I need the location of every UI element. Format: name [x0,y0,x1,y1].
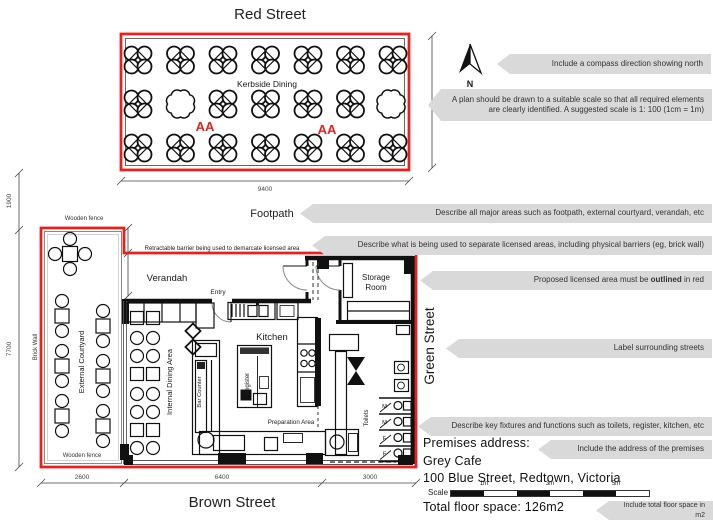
dimension-bottom: 2600 6400 3000 [37,474,420,487]
toilet-stall-label: F [383,436,387,442]
stove-unit [298,318,318,407]
toilet-stalls: M M F F [379,398,411,462]
dimension-1900: 1900 [6,169,23,234]
internal-dining-area: Internal Dining Area [131,312,175,455]
footpath-label: Footpath [240,208,304,220]
callout-compass: Include a compass direction showing nort… [497,54,711,74]
callout-fixtures: Describe key fixtures and functions such… [418,417,712,436]
wooden-fence-bottom-label: Wooden fence [63,453,102,459]
callout-floorspace-note: Include total floor space in m2 [596,501,713,520]
svg-text:1900: 1900 [6,193,13,208]
svg-text:3000: 3000 [363,474,378,481]
callout-separation: Describe what is being used to separate … [312,236,712,255]
scale-tick-3m: 3m [546,481,554,487]
callout-label-streets: Label surrounding streets [446,339,712,358]
scale-tick-5m: 5m [612,481,620,487]
scale-tick-1m: 1m [480,481,488,487]
total-floor-space: Total floor space: 126m2 [423,500,564,514]
callout-address-note: Include the address of the premises [538,440,712,459]
toilet-stall-label: M [382,404,387,410]
dimension-7700: 7700 [6,230,23,471]
preparation-area: Preparation Area [200,419,359,456]
register-label: Register [245,373,251,395]
external-courtyard-label: External Courtyard [77,331,86,394]
scale-bar-strip [450,490,650,497]
kitchen-label: Kitchen [256,332,288,343]
callout-major-areas: Describe all major areas such as footpat… [300,204,712,223]
tree-icon [377,90,405,118]
callout-outlined-red: Proposed licensed area must be outlined … [420,271,712,290]
dimension-9400: 9400 [117,177,413,193]
toilets-label: Toilets [364,409,370,426]
premises-name: Grey Cafe [423,454,482,468]
licensed-area-marker-aa2: AA [318,122,337,137]
scale-label: Scale [428,488,448,497]
tree-icon [167,90,195,118]
callout-outlined-bold: outlined [651,275,682,285]
callout-outlined-prefix: Proposed licensed area must be [534,275,651,285]
retractable-barrier-label: Retractable barrier being used to demarc… [145,246,300,252]
entry-label: Entry [210,289,226,296]
kitchen-area: Kitchen Register [228,302,318,407]
storage-room-label-2: Room [365,283,387,292]
hand-dryer-icon [347,371,365,385]
callout-outlined-suffix: in red [682,275,704,285]
kerbside-dining-area: Kerbside Dining AA AA [121,34,409,170]
street-label-brown: Brown Street [162,494,302,511]
storage-room-label-1: Storage [362,273,391,282]
external-courtyard: External Courtyard Brick Wall Wooden fen… [33,216,122,464]
compass-icon: N [459,44,481,89]
bar-counter: Bar Counter [193,341,220,455]
svg-text:2600: 2600 [75,474,90,481]
storage-room: Storage Room [344,264,410,321]
street-label-red: Red Street [200,6,340,23]
licensed-area-marker-aa1: AA [196,119,215,134]
preparation-area-label: Preparation Area [268,419,315,426]
verandah-label: Verandah [147,273,188,284]
street-label-green: Green Street [422,307,437,385]
toilet-stall-label: F [383,452,387,458]
bar-counter-label: Bar Counter [197,376,203,407]
planter-diamond-icon [186,324,201,339]
toilets-area: M M F F Toilets [330,326,412,462]
callout-scale-note: A plan should be drawn to a suitable sca… [428,89,712,121]
kerbside-dining-label: Kerbside Dining [237,79,297,89]
floor-plan-page: Kerbside Dining AA AA 9400 4400 1900 770… [0,0,713,526]
wooden-fence-top-label: Wooden fence [65,216,104,222]
compass-north-label: N [467,79,474,89]
scale-bar: 1m 3m 5m [450,481,655,499]
svg-text:7700: 7700 [6,341,13,356]
svg-text:9400: 9400 [258,186,273,193]
internal-dining-label: Internal Dining Area [165,348,174,415]
premises-address-label: Premises address: [423,436,530,450]
svg-text:6400: 6400 [215,474,230,481]
hand-dryer-icon [347,357,365,371]
dining-tables [131,312,160,455]
register-island: Register [238,346,272,408]
toilet-stall-label: M [382,420,387,426]
brick-wall-label: Brick Wall [33,334,39,360]
